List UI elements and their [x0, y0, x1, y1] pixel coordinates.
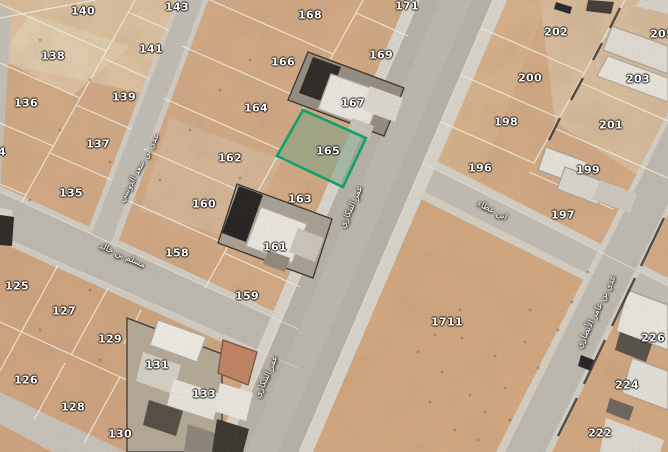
map-view[interactable]: 1401431681712022051381411661692002031361…	[0, 0, 668, 452]
map-canvas	[0, 0, 668, 452]
grain-overlay	[0, 0, 668, 452]
